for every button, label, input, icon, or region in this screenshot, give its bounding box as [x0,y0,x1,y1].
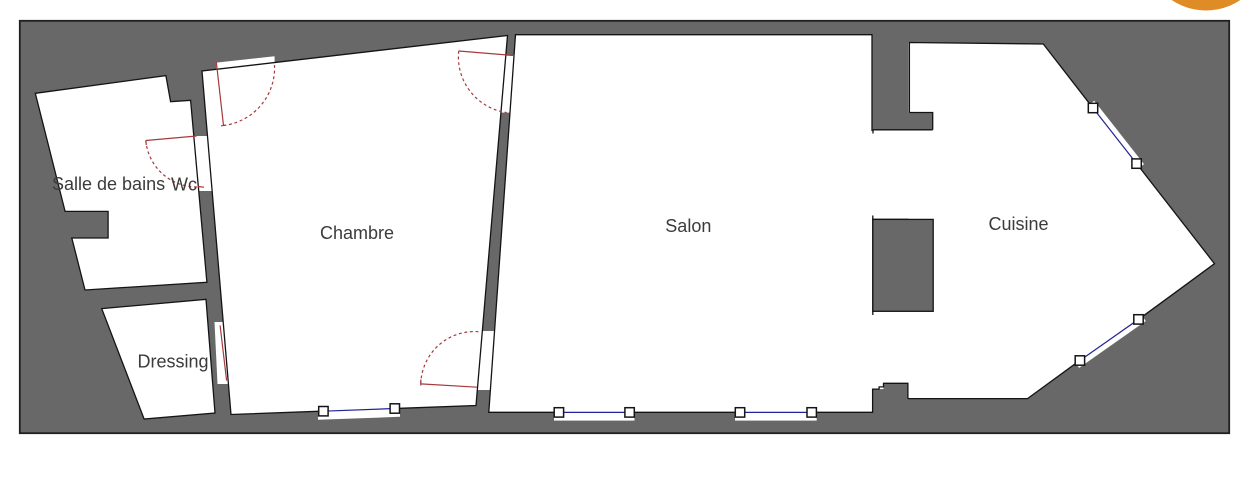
svg-text:Cuisine: Cuisine [989,214,1049,234]
svg-text:Salon: Salon [665,216,711,236]
svg-text:Wc: Wc [171,175,197,195]
svg-text:Dressing: Dressing [138,352,209,372]
svg-text:Salle de bains: Salle de bains [52,174,165,194]
svg-text:Chambre: Chambre [320,223,394,243]
